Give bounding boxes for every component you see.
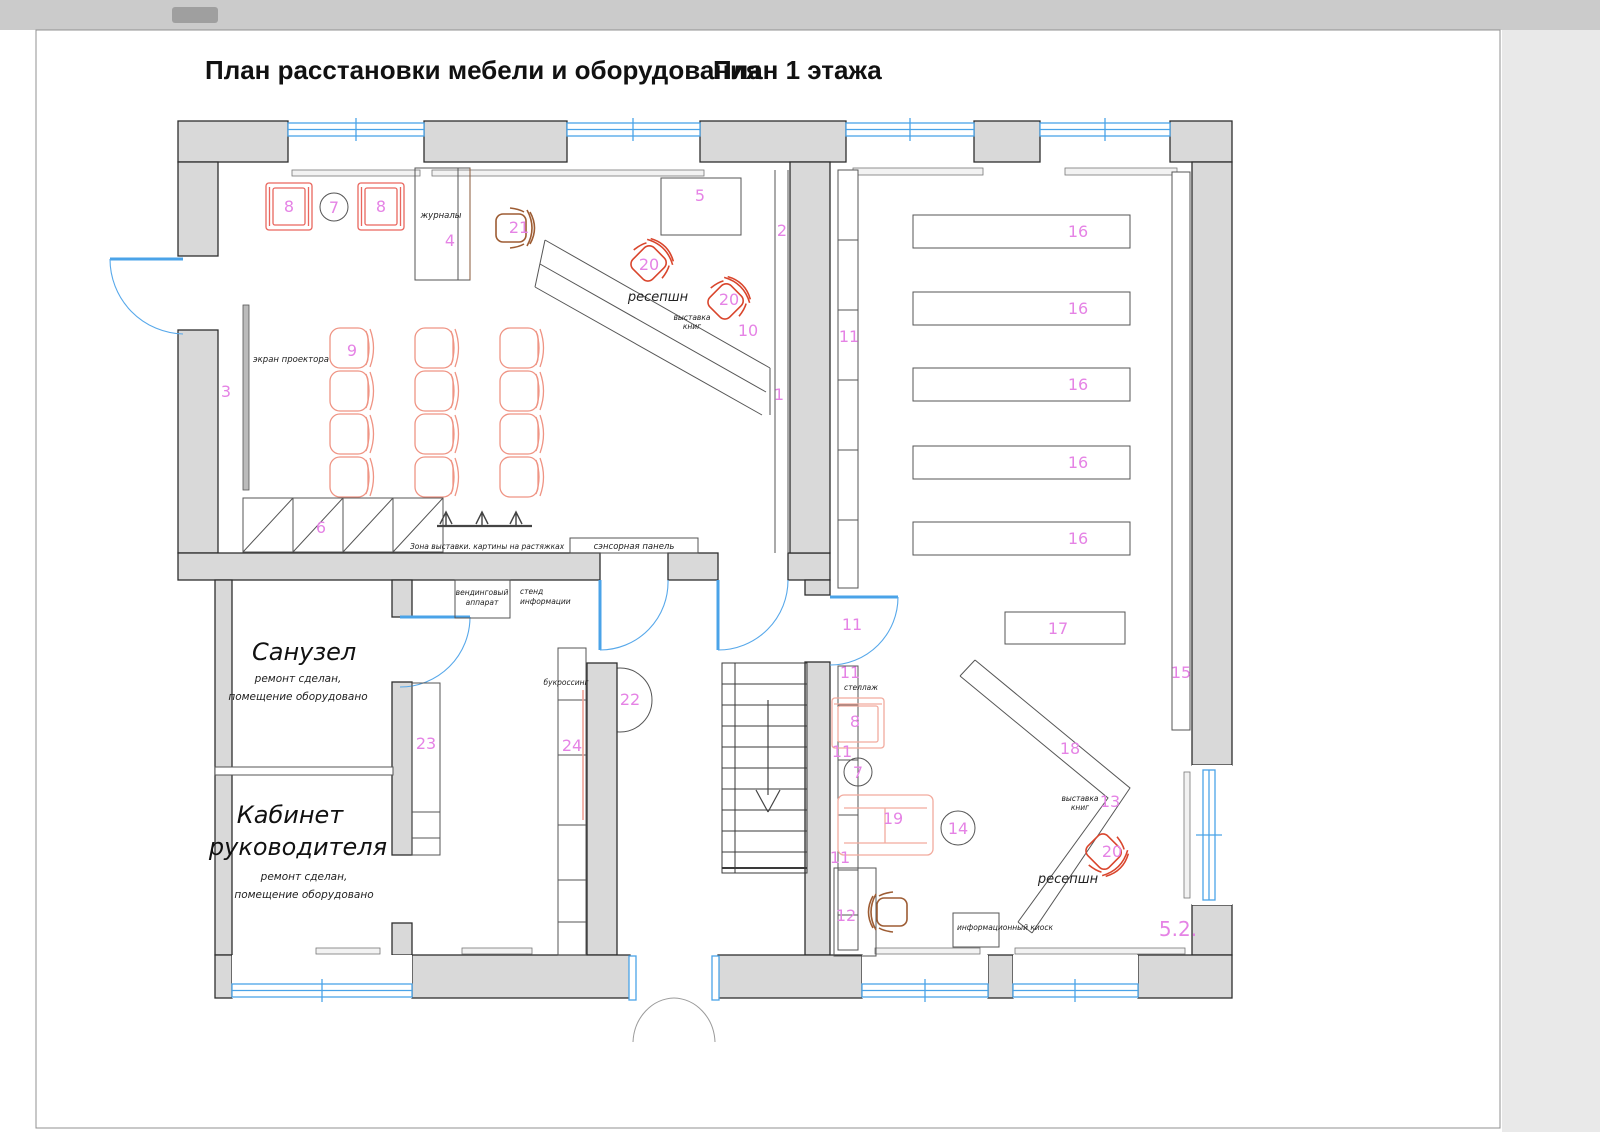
label-16: 16 (1068, 529, 1088, 548)
label-8: 8 (284, 197, 294, 216)
office-name: Кабинет (237, 801, 345, 829)
label-16: 16 (1068, 375, 1088, 394)
bottom-wall-segment (412, 955, 630, 998)
label-8: 8 (850, 712, 860, 731)
bookcrossing-label: букроссинг (544, 678, 589, 687)
wall-shelf-15 (1172, 172, 1190, 730)
window-sill (1065, 168, 1177, 175)
info-stand-label: стенд (520, 587, 543, 596)
stairwell-east-wall (805, 580, 830, 595)
info-kiosk-label: информационный киоск (957, 923, 1053, 932)
window-sill (853, 168, 983, 175)
book-exhibit-label: книг (683, 322, 701, 331)
window (232, 955, 412, 1002)
label-20: 20 (1102, 842, 1122, 861)
label-24: 24 (562, 736, 582, 755)
bottom-wall-segment (988, 955, 1013, 998)
label-16: 16 (1068, 222, 1088, 241)
label-7: 7 (853, 763, 863, 782)
label-1: 1 (774, 385, 784, 404)
label-16: 16 (1068, 453, 1088, 472)
floor-plan-page: План расстановки мебели и оборудования П… (0, 0, 1600, 1132)
bathroom-office-divider (215, 767, 393, 775)
label-11: 11 (830, 848, 850, 867)
bathroom-note: помещение оборудовано (228, 691, 367, 703)
label-6: 6 (316, 518, 326, 537)
bottom-wall-segment (215, 955, 232, 998)
label-15: 15 (1171, 663, 1191, 682)
label-11: 11 (842, 615, 862, 634)
label-4: 4 (445, 231, 455, 250)
central-corridor-wall (790, 162, 830, 553)
label-11: 11 (832, 742, 852, 761)
bottom-wall-segment (718, 955, 862, 998)
label-20: 20 (639, 255, 659, 274)
top-wall-segment (424, 121, 567, 162)
top-toolbar-strip (0, 0, 1600, 30)
stairwell-east-wall (805, 662, 830, 955)
window (1013, 955, 1138, 1002)
shelving-label: стеллаж (844, 683, 878, 692)
label-12: 12 (836, 906, 856, 925)
label-11: 11 (839, 327, 859, 346)
window-sill (316, 948, 380, 954)
label-3: 3 (221, 382, 231, 401)
hall-east-wall (587, 663, 617, 955)
book-exhibit-label: выставка (674, 313, 711, 322)
bottom-wall-segment (1138, 955, 1232, 998)
book-exhibit-label: книг (1071, 803, 1089, 812)
projector-screen-label: экран проектора (253, 355, 329, 365)
top-wall-segment (700, 121, 846, 162)
window (862, 955, 988, 1002)
east-wall-upper (1192, 162, 1232, 765)
window-sill (292, 170, 420, 176)
label-17: 17 (1048, 619, 1068, 638)
label-20: 20 (719, 290, 739, 309)
label-13: 13 (1100, 792, 1120, 811)
office-east-wall-stub (392, 923, 412, 955)
projector-screen (243, 305, 249, 490)
office-name: руководителя (208, 833, 387, 861)
floor-plan-canvas: План расстановки мебели и оборудования П… (0, 0, 1600, 1132)
lecture-room-south-wall (668, 553, 718, 580)
label-5: 5 (695, 186, 705, 205)
bathroom-east-wall (392, 580, 412, 617)
left-wall-lower (178, 330, 218, 553)
top-wall-segment (1170, 121, 1232, 162)
window-sill (1184, 772, 1190, 898)
label-22: 22 (620, 690, 640, 709)
label-21: 21 (509, 218, 529, 237)
label-16: 16 (1068, 299, 1088, 318)
lecture-room-south-wall (788, 553, 830, 580)
page-title: План расстановки мебели и оборудования (205, 55, 761, 85)
book-exhibit-label: выставка (1062, 794, 1099, 803)
office-note: помещение оборудовано (234, 889, 373, 901)
vending-label: вендинговый (456, 588, 509, 597)
reception-label-right: ресепшн (1037, 872, 1099, 887)
window-sill (1015, 948, 1185, 954)
exhibition-zone-label: Зона выставки. картины на растяжках (410, 542, 565, 551)
bathroom-east-wall (392, 682, 412, 855)
right-gutter (1502, 30, 1600, 1132)
label-5-2: 5.2. (1159, 917, 1197, 941)
label-11: 11 (840, 663, 860, 682)
top-wall-segment (974, 121, 1040, 162)
label-18: 18 (1060, 739, 1080, 758)
label-9: 9 (347, 341, 357, 360)
toolbar-tab[interactable] (172, 7, 218, 23)
info-stand-label: информации (520, 597, 571, 606)
bathroom-name: Санузел (252, 638, 356, 666)
east-wall-lower (1192, 905, 1232, 955)
top-wall-segment (178, 121, 288, 162)
label-10: 10 (738, 321, 758, 340)
window-sill (875, 948, 980, 954)
label-19: 19 (883, 809, 903, 828)
window-sill (462, 948, 532, 954)
magazines-label: журналы (420, 211, 462, 221)
label-14: 14 (948, 819, 968, 838)
label-7: 7 (329, 198, 339, 217)
shelving-partition-11 (838, 170, 858, 950)
reception-label-left: ресепшн (627, 290, 689, 305)
touch-panel-label: сэнсорная панель (594, 542, 675, 552)
vending-label: аппарат (466, 598, 499, 607)
label-23: 23 (416, 734, 436, 753)
label-8: 8 (376, 197, 386, 216)
bathroom-note: ремонт сделан, (254, 673, 342, 685)
floor-title: План 1 этажа (713, 55, 882, 85)
window-sill (432, 170, 704, 176)
lecture-room-south-wall (178, 553, 600, 580)
label-2: 2 (777, 221, 787, 240)
office-note: ремонт сделан, (260, 871, 348, 883)
left-wall-upper (178, 162, 218, 256)
